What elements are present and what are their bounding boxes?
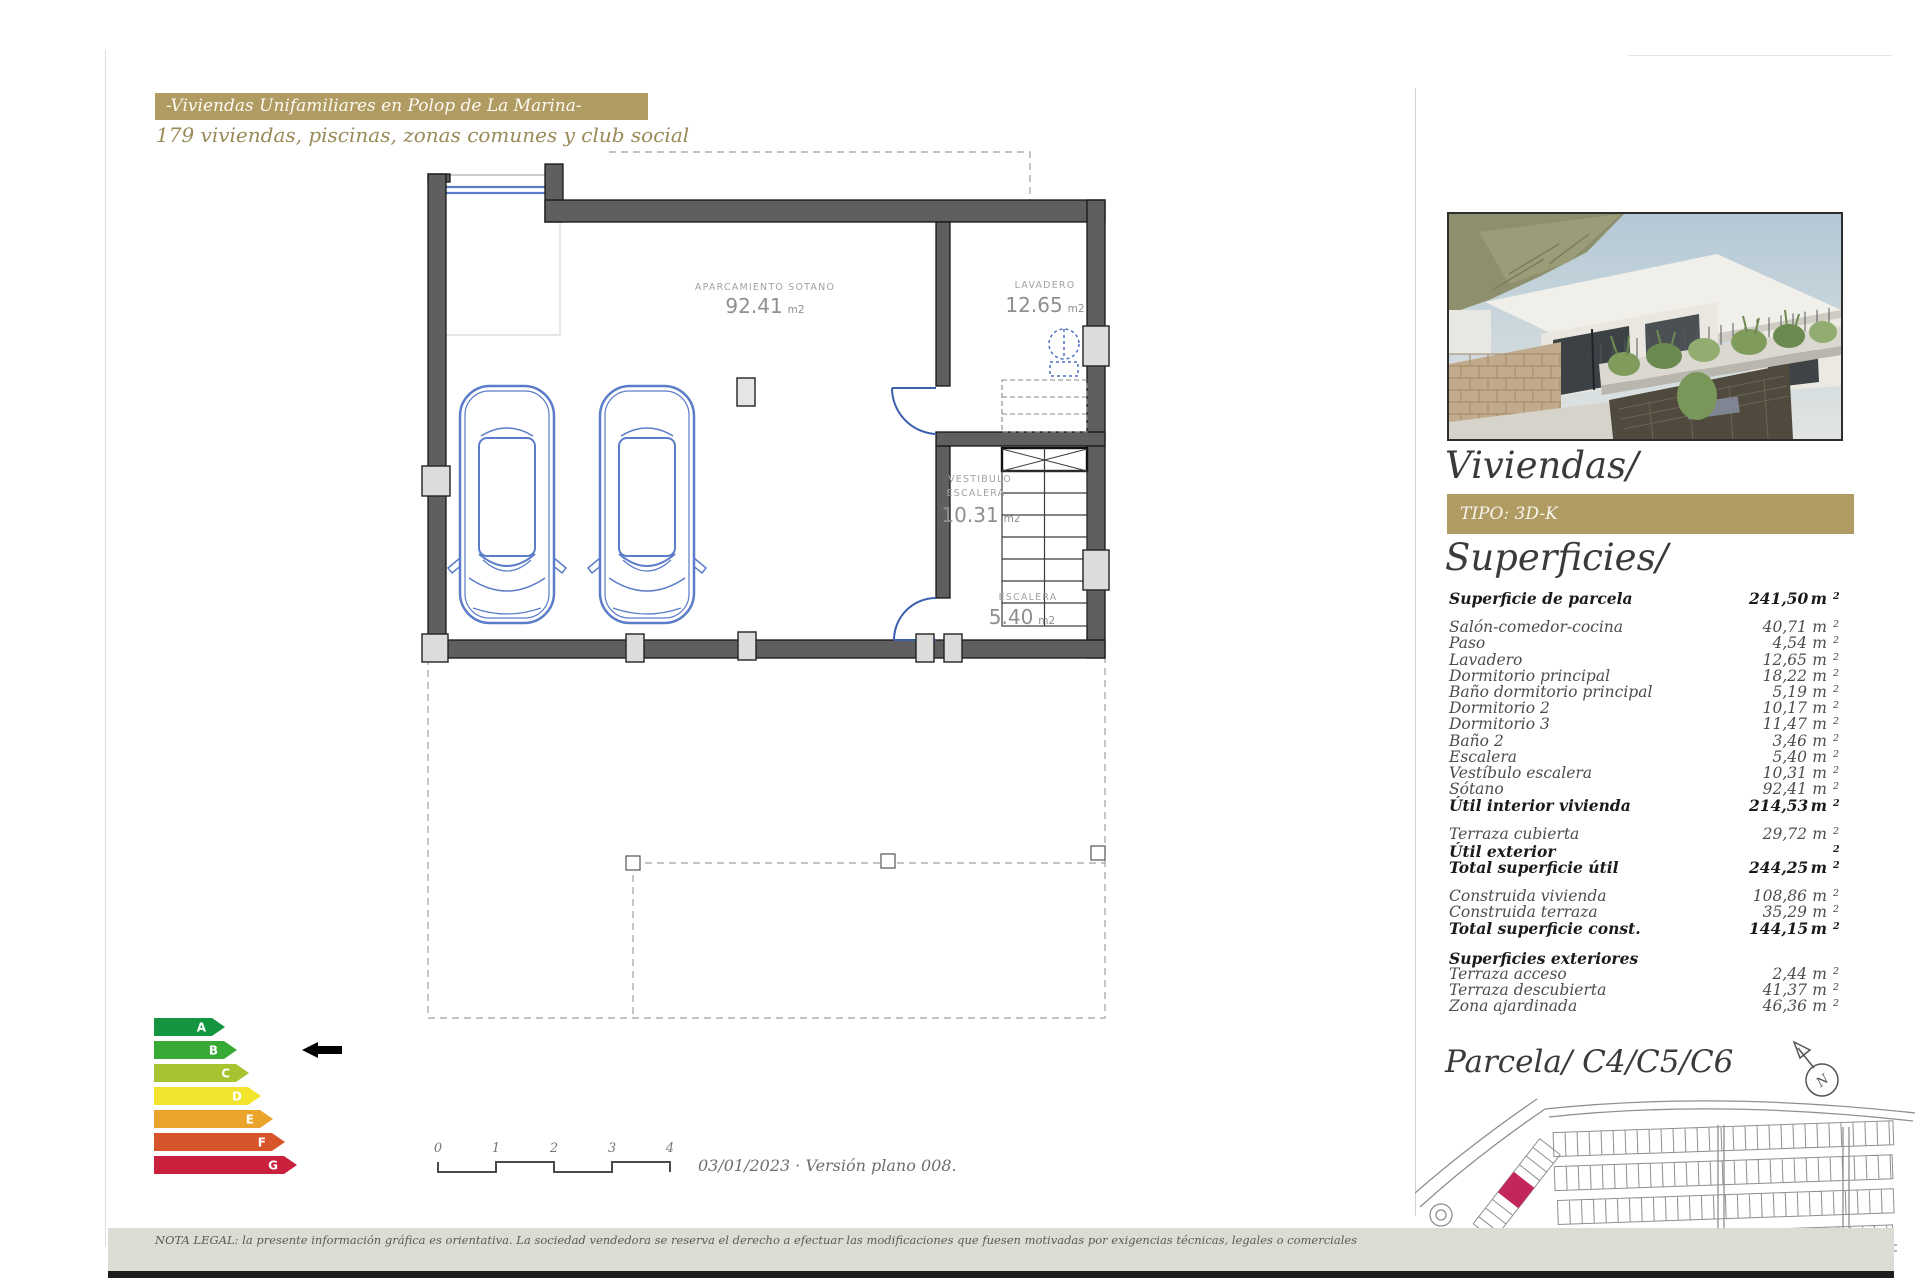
boiler-icon xyxy=(1049,329,1079,376)
surface-row: Total superficie útil244,25m2 xyxy=(1449,858,1841,874)
surface-row: Construida vivienda108,86m2 xyxy=(1449,887,1841,903)
surface-row: Baño 23,46m2 xyxy=(1449,732,1841,748)
laundry-label: LAVADERO xyxy=(1015,280,1076,291)
svg-text:2: 2 xyxy=(549,1141,558,1156)
surface-heading: Superficies exteriores xyxy=(1449,949,1841,965)
surfaces-table: Superficie de parcela241,50m2Salón-comed… xyxy=(1449,589,1841,1013)
scale-bar: 01234 xyxy=(430,1140,690,1186)
energy-scale: ABCDEFG xyxy=(152,1018,352,1184)
svg-text:G: G xyxy=(268,1159,278,1173)
hero-photo xyxy=(1447,212,1843,441)
superficies-title: Superficies/ xyxy=(1445,536,1668,579)
hero-photo-svg xyxy=(1449,214,1841,439)
project-title-banner: -Viviendas Unifamiliares en Polop de La … xyxy=(155,93,648,120)
garage-door xyxy=(446,187,545,193)
surface-row: Total superficie const.144,15m2 xyxy=(1449,919,1841,935)
hall-area: 10.31m2 xyxy=(941,503,1020,527)
svg-text:3: 3 xyxy=(608,1141,616,1156)
svg-text:F: F xyxy=(258,1136,266,1150)
surface-row: Construida terraza35,29m2 xyxy=(1449,903,1841,919)
energy-pointer-icon xyxy=(302,1042,342,1058)
surface-row: Vestíbulo escalera10,31m2 xyxy=(1449,764,1841,780)
floor-plan: APARCAMIENTO SOTANO 92.41m2 LAVADERO 12.… xyxy=(400,130,1140,1040)
surface-row: Salón-comedor-cocina40,71m2 xyxy=(1449,618,1841,634)
car-1 xyxy=(448,386,566,623)
svg-text:1: 1 xyxy=(492,1141,500,1156)
svg-text:4: 4 xyxy=(665,1141,674,1156)
svg-text:E: E xyxy=(246,1113,254,1127)
panel-title: Viviendas/ xyxy=(1445,444,1639,487)
surface-row: Superficie de parcela241,50m2 xyxy=(1449,589,1841,605)
terrace-dashed-outline xyxy=(428,658,1105,1018)
surface-row: Dormitorio principal18,22m2 xyxy=(1449,667,1841,683)
tipo-banner: TIPO: 3D-K xyxy=(1447,494,1854,534)
svg-text:0: 0 xyxy=(434,1141,442,1156)
surface-row: Paso4,54m2 xyxy=(1449,634,1841,650)
upper-floor-dashed-outline xyxy=(609,152,1030,200)
stairs-label: ESCALERA xyxy=(999,592,1058,603)
legal-bottom-bar xyxy=(108,1271,1894,1278)
legal-note: NOTA LEGAL: la presente información gráf… xyxy=(108,1228,1894,1271)
far-building xyxy=(1449,310,1491,354)
car-2 xyxy=(588,386,706,623)
light-well-lines xyxy=(446,222,560,335)
svg-text:C: C xyxy=(221,1067,230,1081)
surface-row: Baño dormitorio principal5,19m2 xyxy=(1449,683,1841,699)
surface-row: Útil interior vivienda214,53m2 xyxy=(1449,796,1841,812)
terrace-pillars xyxy=(626,846,1105,870)
svg-text:A: A xyxy=(197,1021,207,1035)
door-laundry xyxy=(892,388,936,434)
svg-text:B: B xyxy=(209,1044,218,1058)
surface-row: Lavadero12,65m2 xyxy=(1449,651,1841,667)
surface-row: Terraza acceso2,44m2 xyxy=(1449,965,1841,981)
surface-row: Útil exterior2 xyxy=(1449,842,1841,858)
surface-row: Zona ajardinada46,36m2 xyxy=(1449,997,1841,1013)
surface-row: Dormitorio 210,17m2 xyxy=(1449,699,1841,715)
garage-label: APARCAMIENTO SOTANO xyxy=(695,282,835,293)
plan-sheet: -Viviendas Unifamiliares en Polop de La … xyxy=(0,0,1920,1280)
hall-label-1: VESTIBULO xyxy=(948,474,1012,485)
laundry-area: 12.65m2 xyxy=(1005,293,1084,317)
surface-row: Dormitorio 311,47m2 xyxy=(1449,715,1841,731)
sheet-top-line xyxy=(1628,55,1892,56)
stairs-area: 5.40m2 xyxy=(989,605,1055,629)
panel-divider xyxy=(1415,88,1416,1216)
date-version: 03/01/2023 · Versión plano 008. xyxy=(698,1156,957,1175)
surface-row: Escalera5,40m2 xyxy=(1449,748,1841,764)
sheet-edge-line xyxy=(105,50,106,1246)
svg-text:D: D xyxy=(232,1090,242,1104)
surface-row: Sótano92,41m2 xyxy=(1449,780,1841,796)
garage-area: 92.41m2 xyxy=(725,294,804,318)
surface-row: Terraza cubierta29,72m2 xyxy=(1449,825,1841,841)
parcela-title: Parcela/ C4/C5/C6 xyxy=(1445,1044,1733,1080)
stairs xyxy=(1002,380,1087,626)
surface-row: Terraza descubierta41,37m2 xyxy=(1449,981,1841,997)
site-strip xyxy=(1473,1139,1560,1240)
hall-label-2: ESCALERA xyxy=(947,488,1006,499)
